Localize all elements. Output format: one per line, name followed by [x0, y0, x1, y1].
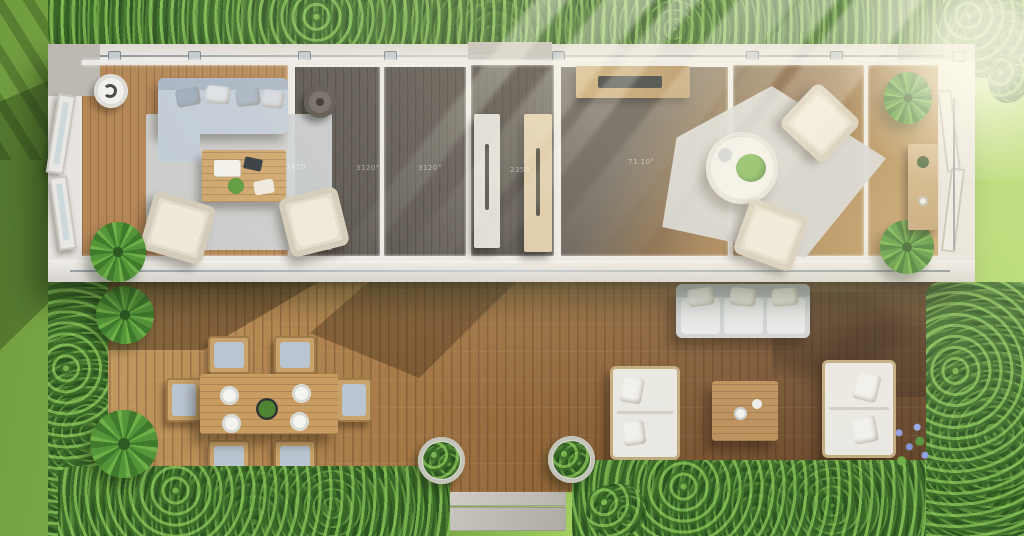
dimension-label: 2350	[510, 166, 530, 174]
table-plant	[228, 178, 244, 194]
dark-book	[243, 156, 263, 171]
blue-wildflowers	[886, 416, 938, 472]
dimension-label: 3120°	[356, 164, 380, 172]
door-glass	[53, 102, 69, 164]
loveseat-pillow	[619, 375, 645, 404]
potted-plant-living	[90, 222, 146, 282]
round-planter-1	[418, 437, 465, 484]
plate-3	[222, 414, 241, 433]
sofa-pillow	[235, 87, 261, 107]
dining-chair-top-2	[274, 336, 316, 374]
dimension-label: 3120°	[418, 164, 442, 172]
stone-paver-2	[446, 507, 566, 531]
cup-1	[734, 407, 747, 420]
sofa-pillow	[261, 89, 285, 110]
books-stack	[214, 160, 240, 176]
folding-door-rod	[953, 98, 955, 250]
cup-2	[752, 399, 762, 409]
round-planter-2	[548, 436, 595, 483]
top-left-wall-corner	[48, 44, 100, 96]
round-pedestal-table	[706, 132, 778, 204]
loveseat-pillow	[851, 415, 879, 445]
dining-chair-cushion	[172, 384, 196, 416]
flat-tv	[598, 76, 662, 88]
rail-bracket	[952, 51, 965, 62]
coffee-table	[202, 150, 286, 202]
outdoor-sofa-pillow	[729, 287, 757, 308]
dimension-label: 71.10°	[628, 158, 655, 166]
dining-chair-cushion	[214, 342, 244, 368]
outdoor-sofa-pillow	[687, 286, 715, 307]
dining-chair-left	[166, 378, 202, 422]
hedge-right-column	[926, 282, 1024, 536]
door-glass	[56, 184, 70, 240]
bush-right-small	[988, 55, 1024, 103]
glass-mullion-4	[554, 64, 559, 260]
tv-console	[576, 66, 690, 98]
dimension-label: 1470	[286, 163, 306, 171]
plate-4	[290, 412, 309, 431]
floor-lamp-arm	[103, 84, 117, 98]
divider-door-wood	[524, 114, 552, 252]
armchair-cushion	[791, 94, 849, 152]
armchair-cushion	[150, 201, 206, 254]
loveseat-seam	[617, 411, 673, 414]
loveseat-pillow	[621, 420, 646, 447]
loveseat-left	[610, 366, 680, 460]
dining-chair-top-1	[208, 336, 250, 374]
divider-door-white	[474, 114, 500, 248]
armchair-cushion	[289, 197, 340, 248]
door-handle	[485, 144, 489, 210]
console-lamp	[918, 196, 928, 206]
table-cloth	[253, 178, 275, 195]
potted-plant-lounge-top	[884, 72, 932, 124]
hedge-top	[48, 0, 943, 48]
outdoor-sofa	[676, 284, 810, 338]
palm-plant-upper	[96, 286, 154, 344]
outdoor-coffee-table	[712, 381, 778, 441]
side-console	[908, 144, 938, 230]
outdoor-sofa-pillow	[771, 287, 798, 307]
pouf-tray	[316, 98, 324, 106]
top-wall-gray-divider	[468, 42, 552, 60]
table-centerpiece-plant	[256, 398, 278, 420]
dining-chair-cushion	[342, 384, 366, 416]
aerial-scene: 1470 3120° 3120° 2350 71.10°	[0, 0, 1024, 536]
planter-shrub	[553, 441, 590, 478]
loveseat-pillow	[852, 371, 882, 404]
door-handle	[536, 148, 540, 216]
loveseat-seam	[829, 407, 889, 410]
leafy-plant-by-pavers	[586, 484, 646, 536]
table-plant-green	[736, 154, 766, 182]
glass-front-bottom	[82, 256, 938, 261]
sliding-door-rail-bottom	[70, 270, 950, 272]
glass-front-top	[82, 60, 938, 65]
glass-mullion-2	[380, 64, 384, 260]
glass-mullion-3	[466, 64, 471, 260]
sliding-door-rail-top	[100, 55, 945, 57]
dining-chair-cushion	[280, 342, 310, 368]
dining-chair-right	[336, 378, 372, 422]
planter-shrub	[423, 442, 460, 479]
sofa-pillow	[205, 85, 231, 105]
round-pouf	[304, 86, 336, 118]
loveseat-right	[822, 360, 896, 458]
armchair-cushion	[743, 209, 798, 262]
console-plant	[917, 156, 929, 168]
plate-2	[292, 384, 311, 403]
floor-lamp	[94, 74, 128, 108]
palm-plant-lower	[90, 410, 158, 478]
table-bowl	[718, 148, 732, 162]
plate-1	[220, 386, 239, 405]
